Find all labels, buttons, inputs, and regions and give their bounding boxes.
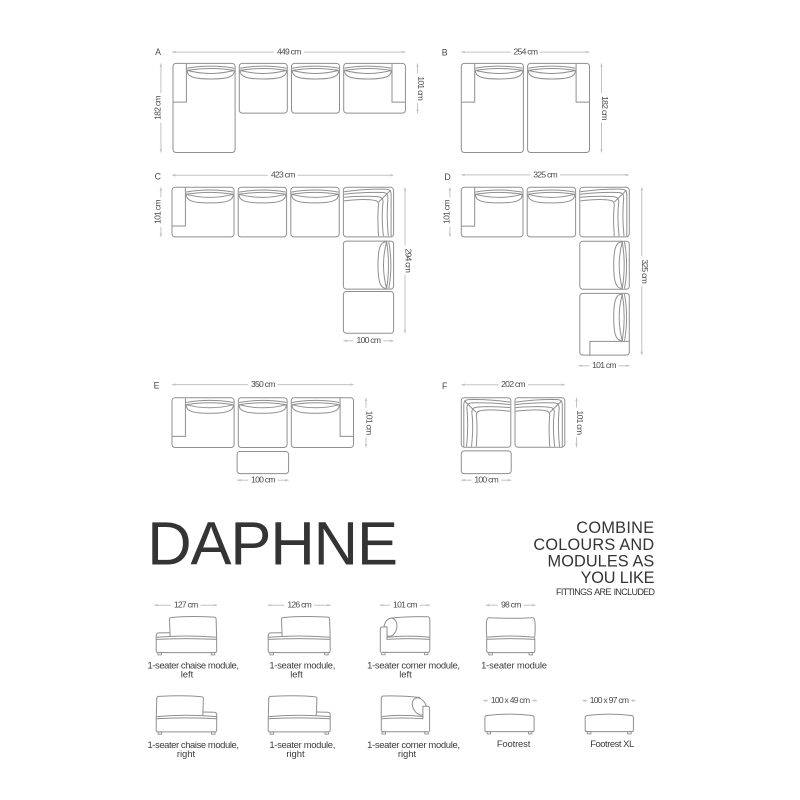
svg-text:A: A — [155, 47, 161, 57]
svg-text:325 cm: 325 cm — [533, 169, 557, 179]
svg-text:325 cm: 325 cm — [640, 259, 650, 283]
svg-text:1-seater corner module,: 1-seater corner module, — [367, 660, 460, 671]
svg-text:101 cm: 101 cm — [393, 600, 417, 610]
svg-text:126 cm: 126 cm — [287, 600, 311, 610]
svg-text:MODULES AS: MODULES AS — [548, 553, 655, 571]
svg-text:F: F — [442, 381, 448, 391]
svg-text:101 cm: 101 cm — [592, 360, 616, 370]
svg-text:294 cm: 294 cm — [403, 248, 413, 272]
svg-text:Footrest: Footrest — [497, 739, 531, 750]
svg-text:101 cm: 101 cm — [364, 411, 374, 435]
svg-text:202 cm: 202 cm — [501, 379, 525, 389]
svg-text:182 cm: 182 cm — [153, 96, 163, 120]
svg-text:right: right — [286, 749, 305, 760]
svg-text:254 cm: 254 cm — [514, 47, 538, 57]
svg-text:100 cm: 100 cm — [357, 335, 381, 345]
svg-text:right: right — [177, 749, 196, 760]
svg-text:98 cm: 98 cm — [501, 600, 521, 610]
svg-text:127 cm: 127 cm — [174, 600, 198, 610]
svg-text:449 cm: 449 cm — [277, 47, 301, 57]
svg-text:101 cm: 101 cm — [575, 411, 585, 435]
svg-text:C: C — [155, 171, 162, 181]
svg-text:101 cm: 101 cm — [441, 200, 451, 224]
svg-text:101 cm: 101 cm — [416, 76, 426, 100]
svg-text:left: left — [181, 669, 194, 680]
svg-text:COMBINE: COMBINE — [576, 519, 654, 537]
svg-text:350 cm: 350 cm — [251, 379, 275, 389]
svg-text:1-seater module: 1-seater module — [481, 660, 547, 671]
svg-text:B: B — [442, 47, 448, 57]
svg-text:left: left — [290, 669, 303, 680]
svg-text:100 x 49 cm: 100 x 49 cm — [491, 695, 530, 705]
svg-text:Footrest XL: Footrest XL — [590, 739, 634, 750]
svg-text:YOU LIKE: YOU LIKE — [581, 569, 655, 587]
svg-text:101 cm: 101 cm — [153, 200, 163, 224]
svg-text:100 cm: 100 cm — [474, 475, 498, 485]
svg-text:423 cm: 423 cm — [271, 170, 295, 180]
svg-text:100 x 97 cm: 100 x 97 cm — [590, 695, 629, 705]
svg-text:D: D — [444, 172, 450, 182]
svg-text:E: E — [154, 380, 160, 390]
svg-text:182 cm: 182 cm — [600, 96, 610, 120]
svg-text:right: right — [398, 749, 417, 760]
svg-text:COLOURS AND: COLOURS AND — [533, 536, 654, 554]
svg-text:DAPHNE: DAPHNE — [147, 510, 397, 579]
svg-text:100 cm: 100 cm — [251, 475, 275, 485]
svg-text:FITTINGS ARE INCLUDED: FITTINGS ARE INCLUDED — [556, 587, 656, 597]
svg-text:left: left — [399, 669, 412, 680]
